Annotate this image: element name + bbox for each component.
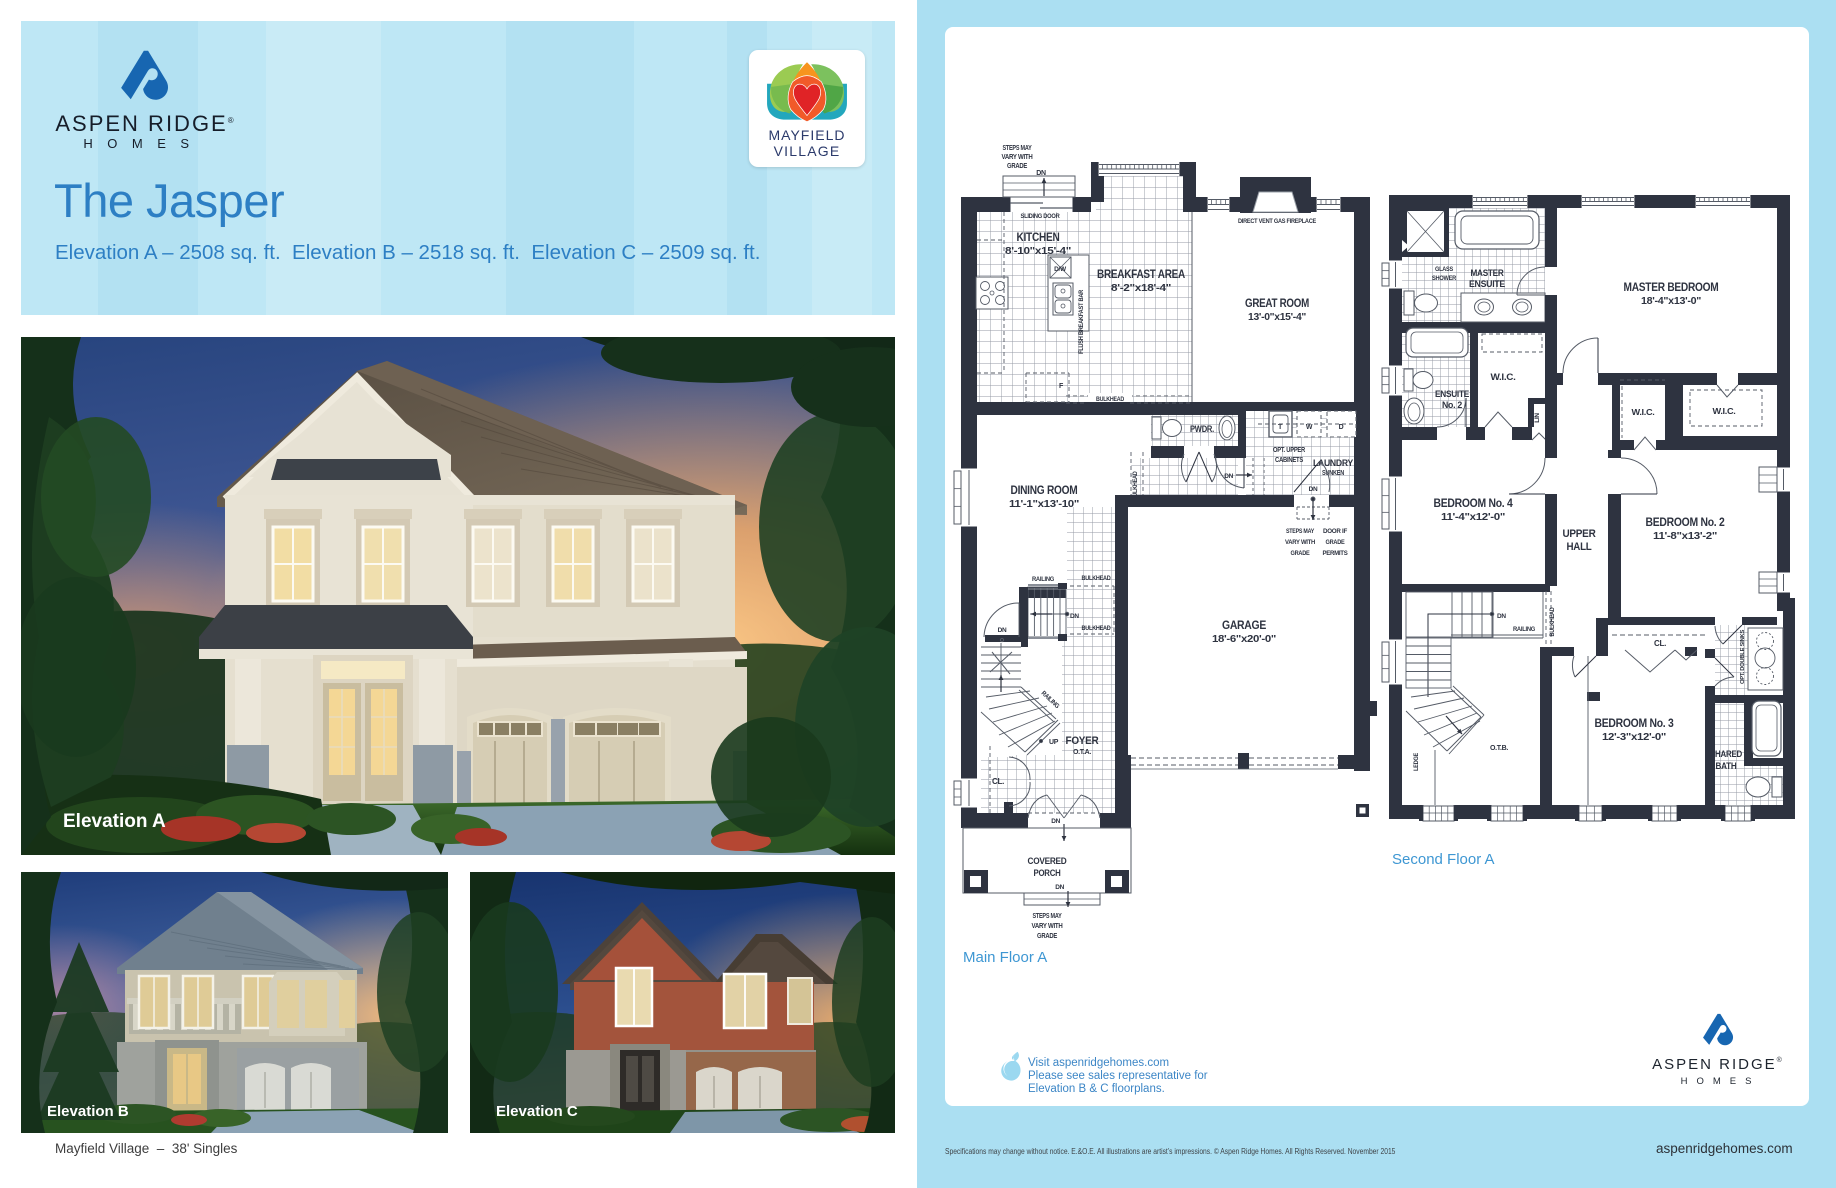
svg-text:BEDROOM No. 4: BEDROOM No. 4 <box>1434 498 1514 510</box>
svg-text:BEDROOM No. 2: BEDROOM No. 2 <box>1646 517 1725 529</box>
svg-text:GARAGE: GARAGE <box>1222 620 1267 632</box>
svg-text:GRADE: GRADE <box>1007 163 1028 170</box>
svg-text:11'-4"x12'-0": 11'-4"x12'-0" <box>1441 511 1505 523</box>
svg-text:SHARED: SHARED <box>1710 749 1742 760</box>
svg-text:LEDGE: LEDGE <box>1414 753 1420 771</box>
svg-text:DN: DN <box>1036 170 1046 177</box>
svg-text:PORCH: PORCH <box>1034 868 1061 879</box>
svg-text:D/W: D/W <box>1054 266 1067 273</box>
svg-text:12'-3"x12'-0": 12'-3"x12'-0" <box>1602 731 1666 743</box>
svg-text:STEPS MAY: STEPS MAY <box>1286 528 1315 535</box>
svg-text:D: D <box>1339 424 1344 431</box>
svg-text:MASTER: MASTER <box>1471 268 1504 279</box>
svg-text:VARY WITH: VARY WITH <box>1285 539 1316 546</box>
svg-text:No. 2: No. 2 <box>1442 400 1462 411</box>
svg-text:O.T.A.: O.T.A. <box>1073 749 1091 756</box>
svg-text:OPT. DOUBLE SINKS: OPT. DOUBLE SINKS <box>1740 630 1746 684</box>
svg-text:SLIDING DOOR: SLIDING DOOR <box>1021 213 1061 220</box>
svg-text:DN: DN <box>998 627 1007 634</box>
svg-text:BULKHEAD: BULKHEAD <box>1082 575 1112 582</box>
svg-text:DOOR IF: DOOR IF <box>1323 528 1347 535</box>
svg-text:GRADE: GRADE <box>1037 933 1058 940</box>
svg-text:LAUNDRY: LAUNDRY <box>1313 458 1354 469</box>
svg-text:DN: DN <box>1051 818 1060 825</box>
svg-text:PWDR.: PWDR. <box>1190 424 1214 435</box>
svg-text:RAILING: RAILING <box>1032 576 1054 583</box>
svg-text:STEPS MAY: STEPS MAY <box>1033 913 1062 920</box>
svg-text:8'-2"x18'-4": 8'-2"x18'-4" <box>1111 282 1171 294</box>
svg-text:FOYER: FOYER <box>1066 735 1099 747</box>
svg-text:GLASS: GLASS <box>1435 266 1454 273</box>
svg-text:BULKHEAD: BULKHEAD <box>1550 607 1556 637</box>
svg-text:18'-4"x13'-0": 18'-4"x13'-0" <box>1641 295 1701 307</box>
svg-text:Elevation B: Elevation B <box>47 1103 129 1120</box>
svg-text:OPT. UPPER: OPT. UPPER <box>1273 447 1305 454</box>
svg-text:ENSUITE: ENSUITE <box>1435 389 1469 400</box>
svg-text:GRADE: GRADE <box>1326 539 1346 546</box>
svg-text:PERMITS: PERMITS <box>1323 550 1349 557</box>
svg-text:HALL: HALL <box>1567 541 1593 553</box>
svg-text:MASTER BEDROOM: MASTER BEDROOM <box>1624 282 1719 294</box>
svg-text:DN: DN <box>1497 613 1506 620</box>
svg-text:DIRECT VENT GAS FIREPLACE: DIRECT VENT GAS FIREPLACE <box>1238 218 1317 225</box>
svg-text:11'-1"x13'-10": 11'-1"x13'-10" <box>1009 498 1079 510</box>
svg-text:SUNKEN: SUNKEN <box>1322 470 1344 477</box>
svg-text:CABINETS: CABINETS <box>1275 457 1304 464</box>
svg-text:8'-10"x15'-4": 8'-10"x15'-4" <box>1005 245 1071 257</box>
svg-text:BATH: BATH <box>1716 761 1737 772</box>
svg-text:Elevation A: Elevation A <box>63 811 166 832</box>
svg-text:COVERED: COVERED <box>1028 856 1067 867</box>
svg-text:BULKHEAD: BULKHEAD <box>1133 471 1139 501</box>
svg-text:Elevation C: Elevation C <box>496 1103 578 1120</box>
svg-text:BREAKFAST AREA: BREAKFAST AREA <box>1097 269 1185 281</box>
svg-text:BULKHEAD: BULKHEAD <box>1096 396 1124 403</box>
svg-text:KITCHEN: KITCHEN <box>1017 232 1060 244</box>
svg-text:UP: UP <box>1049 739 1059 746</box>
svg-text:DN: DN <box>1224 473 1233 480</box>
svg-text:UPPER: UPPER <box>1563 528 1596 540</box>
svg-text:13'-0"x15'-4": 13'-0"x15'-4" <box>1248 311 1306 323</box>
svg-text:GRADE: GRADE <box>1291 550 1311 557</box>
svg-text:STEPS MAY: STEPS MAY <box>1003 145 1032 152</box>
svg-text:DINING ROOM: DINING ROOM <box>1011 485 1078 497</box>
svg-text:W: W <box>1306 424 1313 431</box>
svg-text:W.I.C.: W.I.C. <box>1713 406 1736 416</box>
svg-text:DN: DN <box>1055 884 1064 891</box>
svg-text:W.I.C.: W.I.C. <box>1491 372 1516 382</box>
svg-text:BULKHEAD: BULKHEAD <box>1082 625 1112 632</box>
svg-text:VARY WITH: VARY WITH <box>1002 154 1033 161</box>
svg-text:W.I.C.: W.I.C. <box>1632 407 1655 417</box>
svg-text:LIN: LIN <box>1534 413 1541 423</box>
svg-text:11'-8"x13'-2": 11'-8"x13'-2" <box>1653 530 1717 542</box>
svg-text:18'-6"x20'-0": 18'-6"x20'-0" <box>1212 633 1276 645</box>
svg-text:O.T.B.: O.T.B. <box>1490 745 1508 752</box>
svg-text:FLUSH BREAKFAST BAR: FLUSH BREAKFAST BAR <box>1079 289 1085 354</box>
svg-text:ENSUITE: ENSUITE <box>1469 279 1505 290</box>
svg-text:DN: DN <box>1070 613 1079 620</box>
svg-text:BEDROOM No. 3: BEDROOM No. 3 <box>1595 718 1674 730</box>
svg-text:VARY WITH: VARY WITH <box>1032 923 1063 930</box>
svg-text:CL.: CL. <box>1654 639 1666 648</box>
svg-text:CL.: CL. <box>992 777 1004 786</box>
svg-text:DN: DN <box>1309 486 1318 493</box>
svg-text:SHOWER: SHOWER <box>1432 275 1457 282</box>
svg-text:GREAT ROOM: GREAT ROOM <box>1245 298 1309 310</box>
svg-text:RAILING: RAILING <box>1513 626 1535 633</box>
